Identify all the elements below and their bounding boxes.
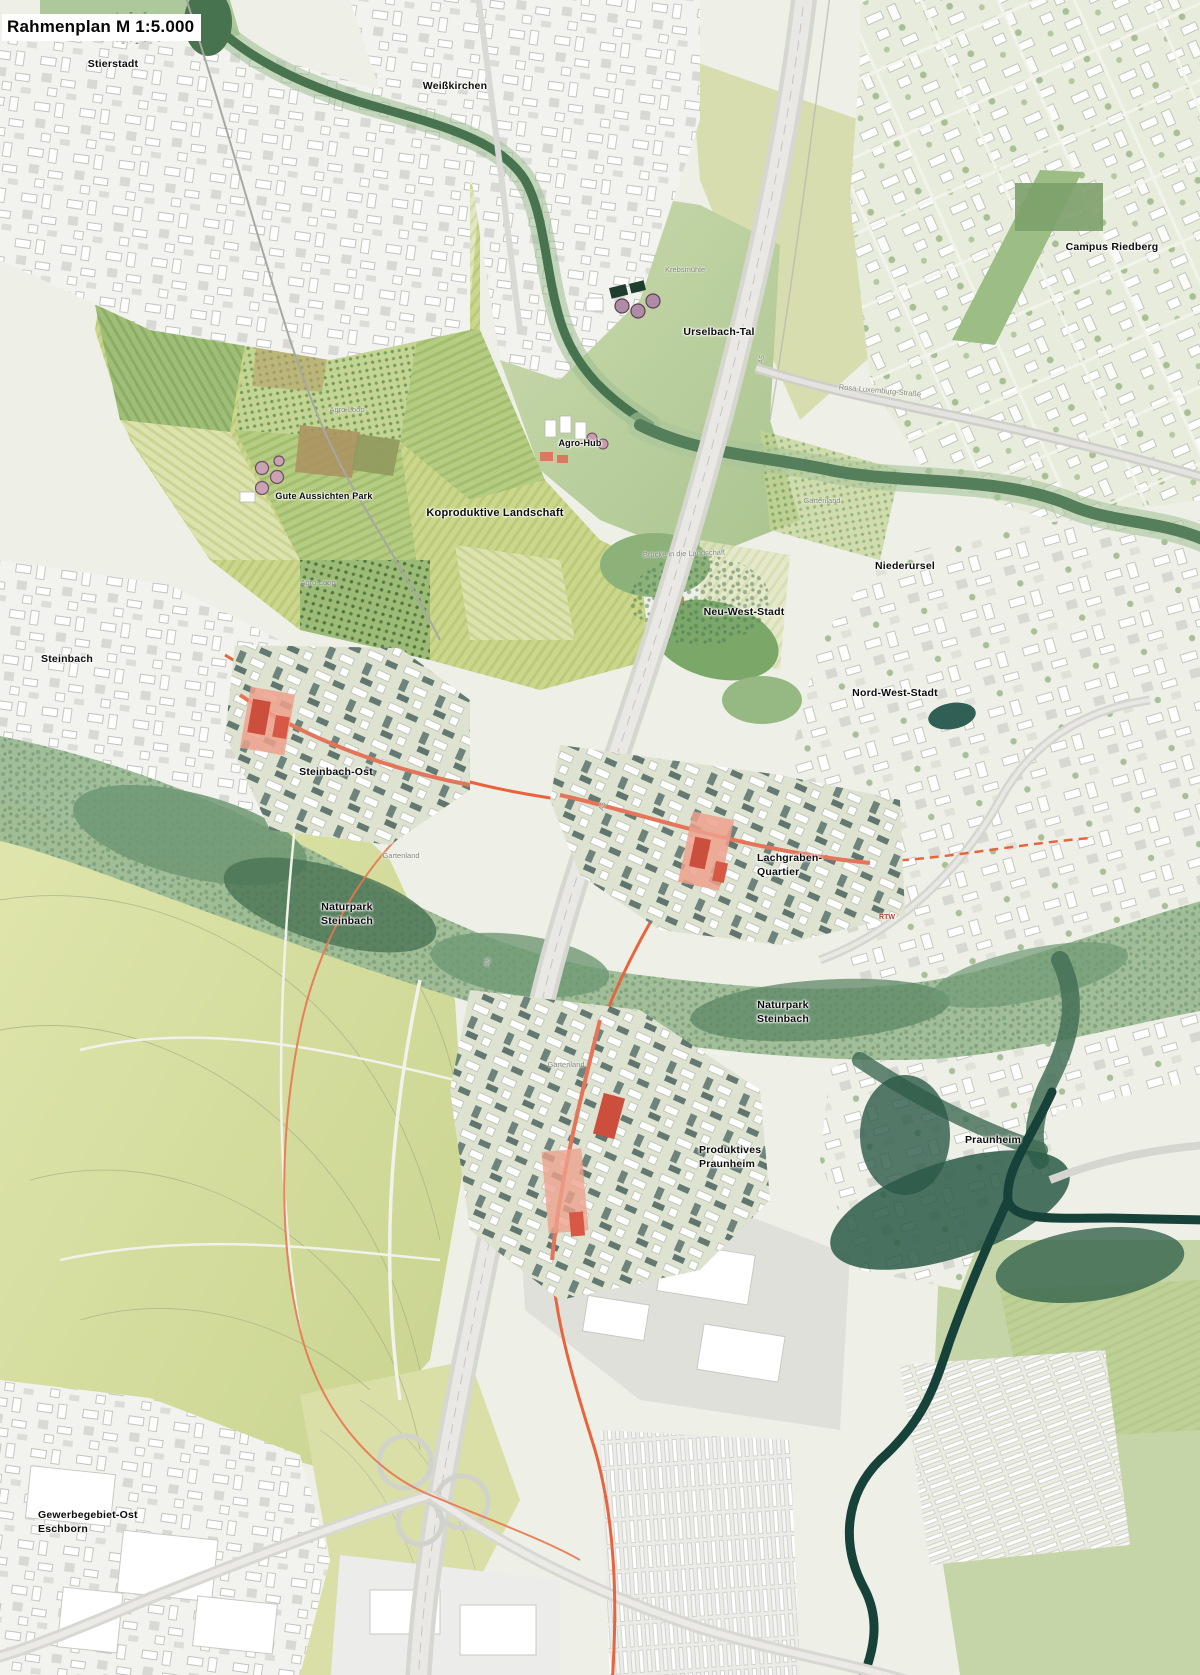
label-gartenland-3: Gartenland <box>547 1060 584 1069</box>
label-steinbach: Steinbach <box>41 653 93 667</box>
label-campus-riedberg: Campus Riedberg <box>1066 241 1159 255</box>
label-lachgraben-line1: Lachgraben- <box>757 852 822 866</box>
label-produktives-praunheim: Produktives Praunheim <box>699 1144 761 1171</box>
label-koproduktive-landschaft: Koproduktive Landschaft <box>426 506 563 520</box>
label-urselbach-tal: Urselbach-Tal <box>683 326 754 340</box>
label-nord-west-stadt: Nord-West-Stadt <box>852 687 938 701</box>
label-rtw: RTW <box>879 914 895 921</box>
label-gewerbegebiet-line1: Gewerbegebiet-Ost <box>38 1509 138 1523</box>
label-agro-loop-1: Agro-Loop <box>329 405 364 414</box>
label-produktives-line1: Produktives <box>699 1144 761 1158</box>
rahmenplan-map: Rahmenplan M 1:5.000 Stierstadt Weißkirc… <box>0 0 1200 1675</box>
label-lachgraben-quartier: Lachgraben- Quartier <box>757 852 822 879</box>
label-naturpark-e-line1: Naturpark <box>757 999 809 1013</box>
label-gewerbegebiet-line2: Eschborn <box>38 1523 138 1537</box>
label-naturpark-steinbach-east: Naturpark Steinbach <box>757 999 809 1026</box>
label-krebsmuehle: Krebsmühle <box>665 265 705 274</box>
label-naturpark-e-line2: Steinbach <box>757 1013 809 1027</box>
label-agro-loop-2: Agro-Loop <box>300 578 335 587</box>
label-naturpark-w-line2: Steinbach <box>321 915 373 929</box>
label-naturpark-steinbach-west: Naturpark Steinbach <box>321 901 373 928</box>
label-neu-west-stadt: Neu-West-Stadt <box>704 606 785 620</box>
label-steinbach-ost: Steinbach-Ost <box>299 766 373 780</box>
label-gute-aussichten-park: Gute Aussichten Park <box>275 491 372 503</box>
label-praunheim: Praunheim <box>965 1134 1021 1148</box>
label-weisskirchen: Weißkirchen <box>423 80 487 94</box>
label-niederursel: Niederursel <box>875 560 935 574</box>
map-canvas <box>0 0 1200 1675</box>
label-stierstadt: Stierstadt <box>88 58 138 72</box>
label-lachgraben-line2: Quartier <box>757 866 822 880</box>
label-produktives-line2: Praunheim <box>699 1158 761 1172</box>
label-gartenland-2: Gartenland <box>382 851 419 860</box>
label-naturpark-w-line1: Naturpark <box>321 901 373 915</box>
label-gewerbegebiet-ost-eschborn: Gewerbegebiet-Ost Eschborn <box>38 1509 138 1536</box>
label-agro-hub: Agro-Hub <box>558 438 601 450</box>
label-gartenland-1: Gartenland <box>803 496 840 505</box>
map-title: Rahmenplan M 1:5.000 <box>2 14 201 41</box>
